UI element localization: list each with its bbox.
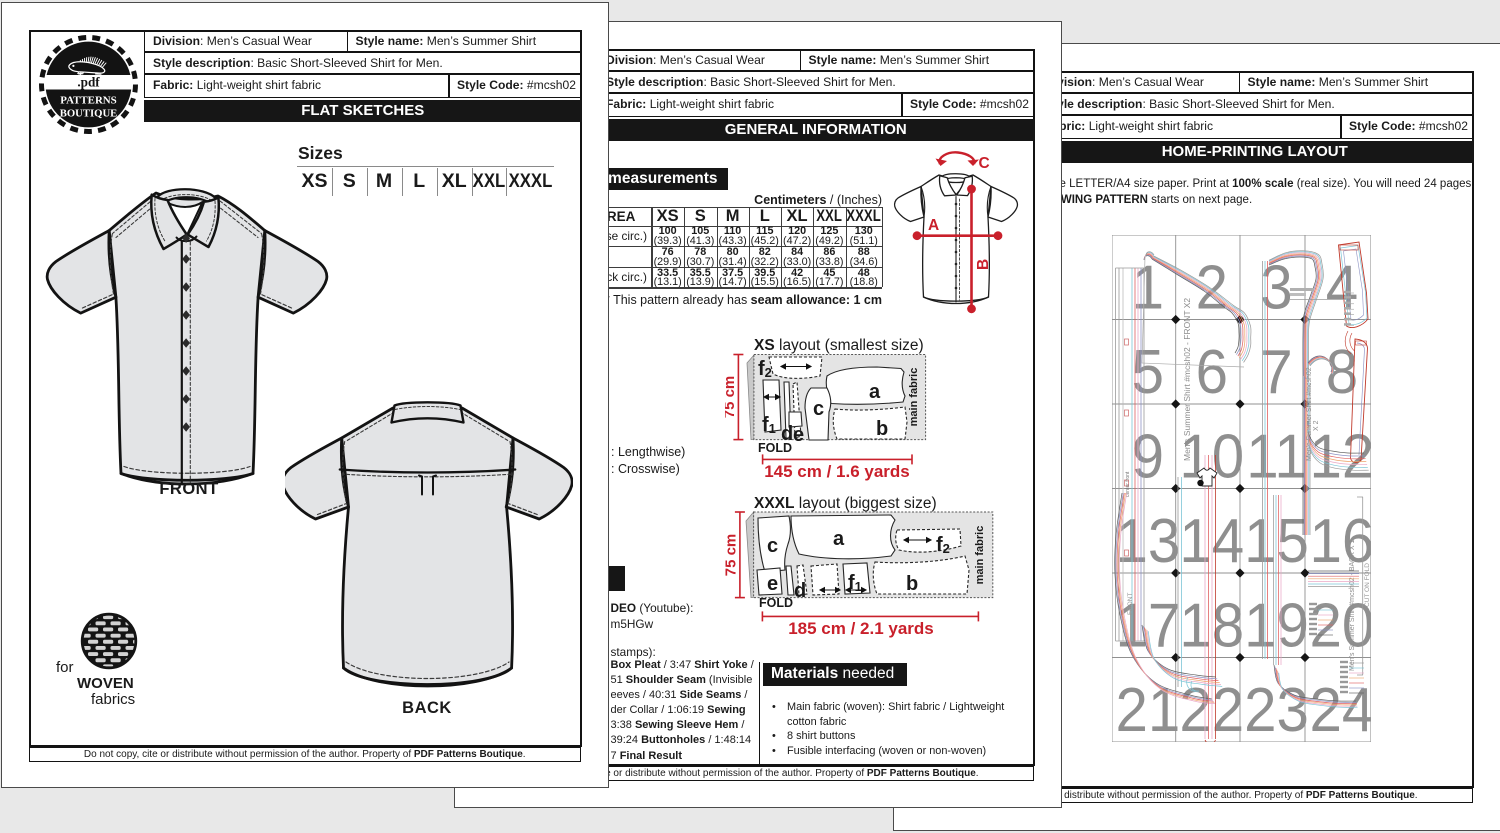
svg-text:PATTERNS: PATTERNS <box>60 95 116 107</box>
svg-text:75 cm: 75 cm <box>725 376 738 419</box>
svg-text:c: c <box>767 535 778 557</box>
svg-text:A: A <box>928 217 939 234</box>
svg-text:a: a <box>833 528 845 550</box>
svg-text:11: 11 <box>1246 422 1306 491</box>
svg-text:9: 9 <box>1131 422 1163 491</box>
svg-text:.pdf: .pdf <box>77 75 100 90</box>
svg-text:d: d <box>794 580 806 602</box>
svg-text:CUT ON FOLD: CUT ON FOLD <box>1364 563 1371 607</box>
svg-text:a: a <box>869 381 881 403</box>
svg-text:19: 19 <box>1244 591 1309 660</box>
svg-text:b: b <box>876 418 888 440</box>
svg-text:23: 23 <box>1244 675 1309 742</box>
svg-text:21: 21 <box>1115 675 1180 742</box>
svg-text:16: 16 <box>1309 506 1371 575</box>
svg-text:Men’s Summer Shirt #mcsh02 -: Men’s Summer Shirt #mcsh02 - FRONT X2 <box>1182 298 1192 461</box>
svg-text:15: 15 <box>1244 506 1309 575</box>
svg-text:BOUTIQUE: BOUTIQUE <box>60 108 118 120</box>
svg-text:C: C <box>979 155 990 172</box>
svg-text:main fabric: main fabric <box>908 368 920 427</box>
svg-text:c: c <box>813 398 824 420</box>
svg-text:e: e <box>767 573 778 595</box>
svg-text:main fabric: main fabric <box>974 526 986 585</box>
svg-text:12: 12 <box>1309 422 1371 491</box>
svg-text:B: B <box>975 259 992 270</box>
svg-text:FRONT: FRONT <box>1127 593 1134 615</box>
svg-text:X 2: X 2 <box>1313 420 1320 431</box>
svg-text:75 cm: 75 cm <box>725 534 740 577</box>
svg-text:6: 6 <box>1195 337 1227 406</box>
svg-text:20: 20 <box>1309 591 1371 660</box>
svg-text:e: e <box>793 424 804 446</box>
svg-text:center front: center front <box>1125 471 1131 497</box>
svg-text:13: 13 <box>1115 506 1180 575</box>
svg-text:b: b <box>906 573 918 595</box>
svg-text:Men’s Summer Shirt #mcsh02 -: Men’s Summer Shirt #mcsh02 - BACK X 1 <box>1349 540 1356 671</box>
svg-text:5: 5 <box>1131 337 1163 406</box>
svg-text:24: 24 <box>1309 675 1371 742</box>
